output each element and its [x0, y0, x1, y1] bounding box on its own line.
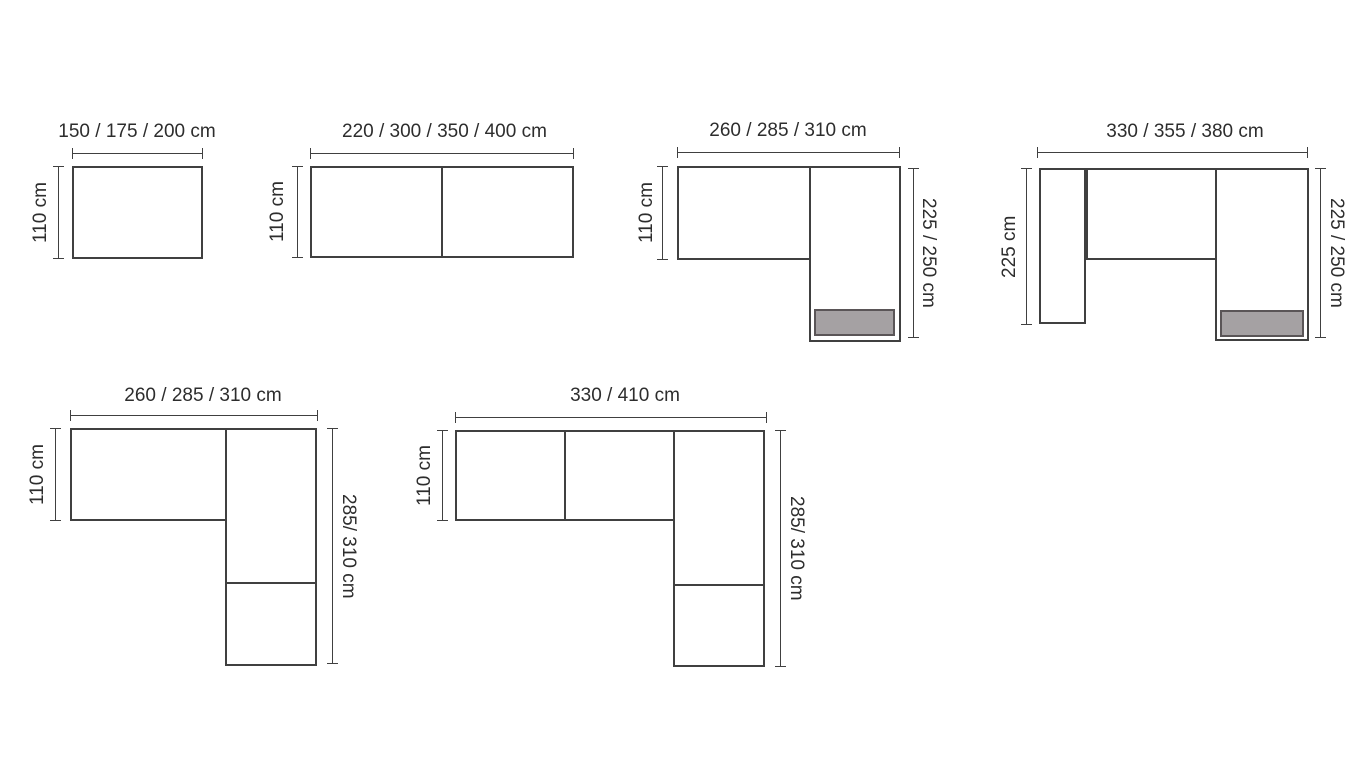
sofa-corner-section — [225, 428, 317, 666]
footrest-pad — [814, 309, 895, 336]
side-length-dimension-label: 285/ 310 cm — [336, 428, 360, 664]
width-dimension-line — [455, 412, 767, 423]
module-divider-line — [564, 432, 566, 519]
sofa-dimension-sheet: 150 / 175 / 200 cm 110 cm 220 / 300 / 35… — [0, 0, 1366, 768]
width-dimension-label: 330 / 410 cm — [525, 384, 725, 408]
depth-dimension-label: 110 cm — [635, 166, 659, 260]
depth-dimension-line — [292, 166, 303, 258]
module-divider-line — [227, 582, 315, 584]
width-dimension-line — [310, 148, 574, 159]
module-divider-line — [675, 584, 763, 586]
module-divider-line — [441, 168, 443, 256]
sofa-left-section — [70, 428, 227, 521]
width-dimension-label: 260 / 285 / 310 cm — [688, 119, 888, 143]
right-chaise-dimension-label: 225 / 250 cm — [1324, 168, 1348, 338]
side-length-dimension-label: 285/ 310 cm — [784, 430, 808, 667]
depth-dimension-label: 110 cm — [266, 166, 290, 258]
footrest-pad — [1220, 310, 1304, 337]
sofa-left-section — [677, 166, 811, 260]
width-dimension-label: 330 / 355 / 380 cm — [1085, 120, 1285, 144]
depth-dimension-label: 110 cm — [29, 166, 53, 259]
width-dimension-label: 260 / 285 / 310 cm — [103, 384, 303, 408]
depth-dimension-line — [437, 430, 448, 521]
width-dimension-line — [1037, 147, 1308, 158]
left-chaise-dimension-line — [1021, 168, 1032, 325]
depth-dimension-label: 110 cm — [26, 428, 50, 521]
sofa-corner-section — [673, 430, 765, 667]
sofa-outline — [72, 166, 203, 259]
depth-dimension-line — [53, 166, 64, 259]
width-dimension-label: 150 / 175 / 200 cm — [37, 120, 237, 144]
sofa-left-chaise-section — [1039, 168, 1086, 324]
width-dimension-line — [677, 147, 900, 158]
depth-dimension-line — [50, 428, 61, 521]
depth-dimension-label: 110 cm — [413, 430, 437, 521]
left-chaise-dimension-label: 225 cm — [998, 168, 1022, 325]
width-dimension-line — [70, 410, 318, 421]
sofa-middle-section — [1086, 168, 1217, 260]
width-dimension-label: 220 / 300 / 350 / 400 cm — [342, 120, 542, 144]
width-dimension-line — [72, 148, 203, 159]
chaise-length-dimension-label: 225 / 250 cm — [916, 168, 940, 338]
